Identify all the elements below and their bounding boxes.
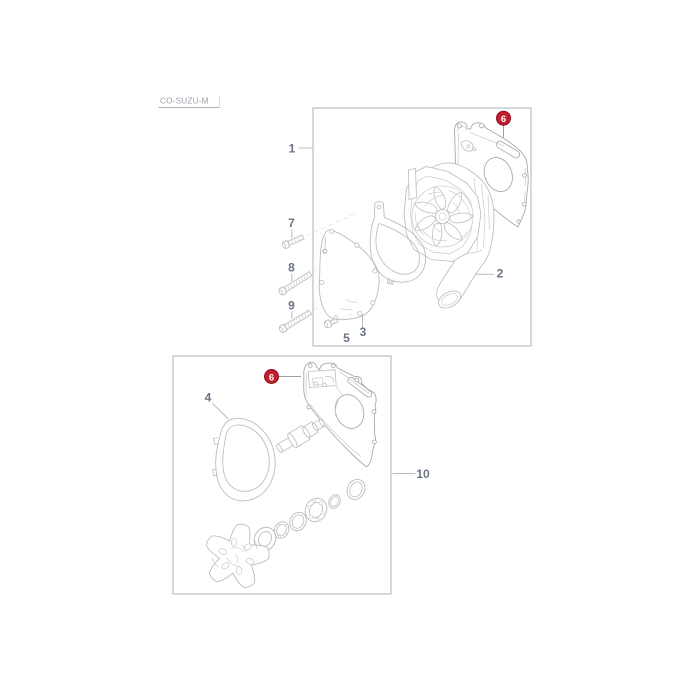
svg-text:CO-SUZU-M: CO-SUZU-M [160, 97, 209, 106]
svg-text:3: 3 [360, 325, 367, 339]
svg-text:6: 6 [269, 372, 274, 383]
svg-text:9: 9 [288, 299, 295, 313]
svg-text:5: 5 [343, 331, 350, 345]
svg-text:4: 4 [205, 391, 212, 405]
svg-text:10: 10 [416, 467, 430, 481]
svg-text:1: 1 [289, 142, 296, 156]
svg-text:2: 2 [497, 267, 504, 281]
svg-text:7: 7 [288, 216, 295, 230]
svg-text:8: 8 [288, 261, 295, 275]
svg-text:6: 6 [501, 114, 506, 125]
